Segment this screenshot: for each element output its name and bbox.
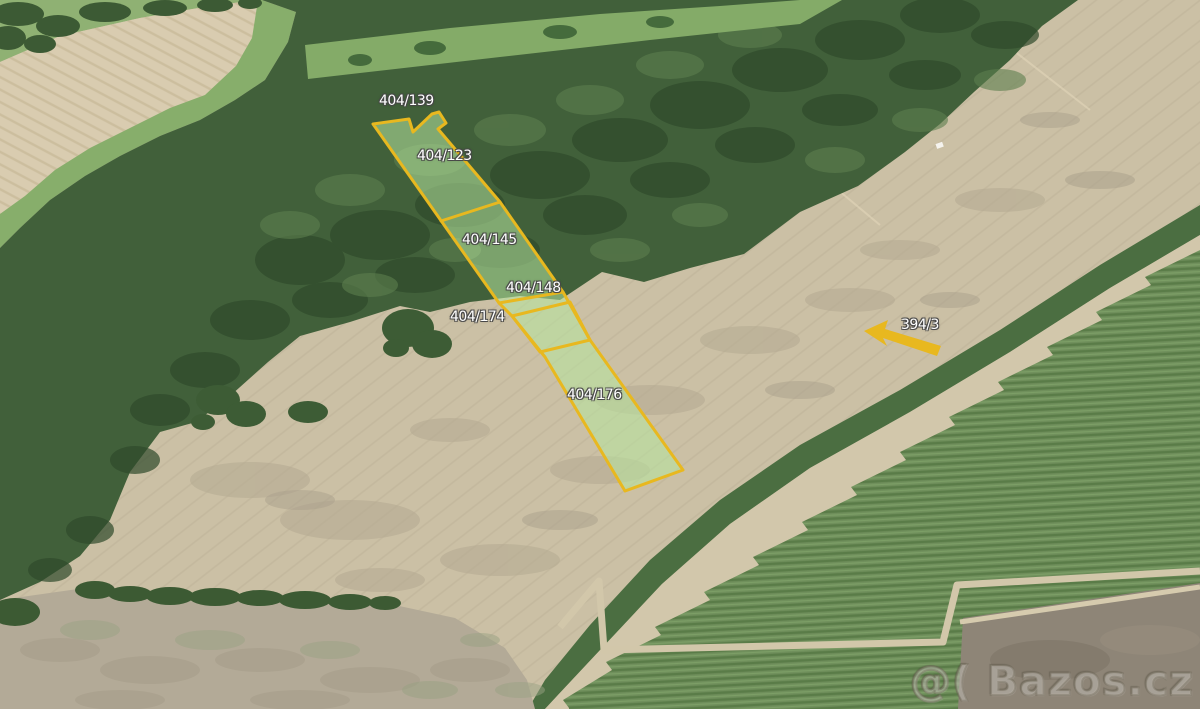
parcel-label-394-3: 394/3: [901, 317, 939, 333]
parcel-label-404-123: 404/123: [417, 148, 472, 164]
parcel-label-404-176: 404/176: [567, 387, 622, 403]
aerial-photo-svg: [0, 0, 1200, 709]
parcel-label-404-145: 404/145: [462, 232, 517, 248]
bazos-watermark: @( Bazos.cz: [910, 657, 1194, 705]
parcel-label-404-139: 404/139: [379, 93, 434, 109]
parcel-label-404-148: 404/148: [506, 280, 561, 296]
aerial-map: 404/139 404/123 404/145 404/148 404/174 …: [0, 0, 1200, 709]
parcel-label-404-174: 404/174: [450, 309, 505, 325]
